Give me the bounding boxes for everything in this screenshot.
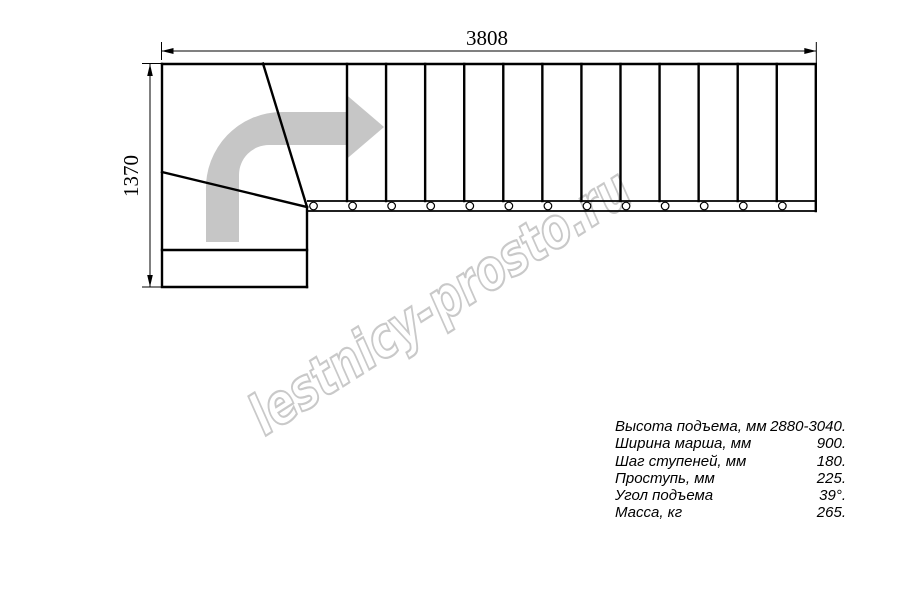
spec-row-tread-depth: Проступь, мм 225. [615,470,846,487]
spec-label: Проступь, мм [615,470,715,487]
spec-label: Масса, кг [615,504,682,521]
spec-value: 2880-3040. [770,418,846,435]
spec-row-step-rise: Шаг ступеней, мм 180. [615,453,846,470]
spec-row-mass: Масса, кг 265. [615,504,846,521]
spec-value: 900. [817,435,846,452]
baluster-circle [505,202,513,210]
baluster-circle [661,202,669,210]
baluster-circle [544,202,552,210]
baluster-circle [466,202,474,210]
baluster-circle [388,202,396,210]
baluster-circle [349,202,357,210]
baluster-circle [310,202,318,210]
spec-label: Угол подъема [615,487,713,504]
height-dimension-label: 1370 [119,155,143,197]
baluster-circle [427,202,435,210]
spec-row-climb-angle: Угол подъема 39°. [615,487,846,504]
baluster-circle [739,202,747,210]
spec-value: 39°. [819,487,846,504]
width-arrowhead-right [804,48,816,54]
staircase-drawing-page: lestnicy-prosto.ru 3 [0,0,900,600]
balusters [310,202,786,210]
width-dimension-label: 3808 [466,26,508,50]
spec-row-lift-height: Высота подъема, мм 2880-3040. [615,418,846,435]
spec-row-flight-width: Ширина марша, мм 900. [615,435,846,452]
height-arrowhead-top [147,64,153,76]
spec-label: Высота подъема, мм [615,418,767,435]
width-arrowhead-left [162,48,174,54]
spec-label: Шаг ступеней, мм [615,453,746,470]
spec-value: 180. [817,453,846,470]
baluster-circle [622,202,630,210]
baluster-circle [583,202,591,210]
spec-value: 265. [817,504,846,521]
tread-lines [347,64,777,201]
height-dimension: 1370 [119,64,162,288]
width-dimension: 3808 [162,26,817,63]
specs-table: Высота подъема, мм 2880-3040. Ширина мар… [615,418,846,522]
baluster-circle [779,202,787,210]
height-arrowhead-bottom [147,275,153,287]
spec-label: Ширина марша, мм [615,435,751,452]
baluster-circle [700,202,708,210]
spec-value: 225. [817,470,846,487]
